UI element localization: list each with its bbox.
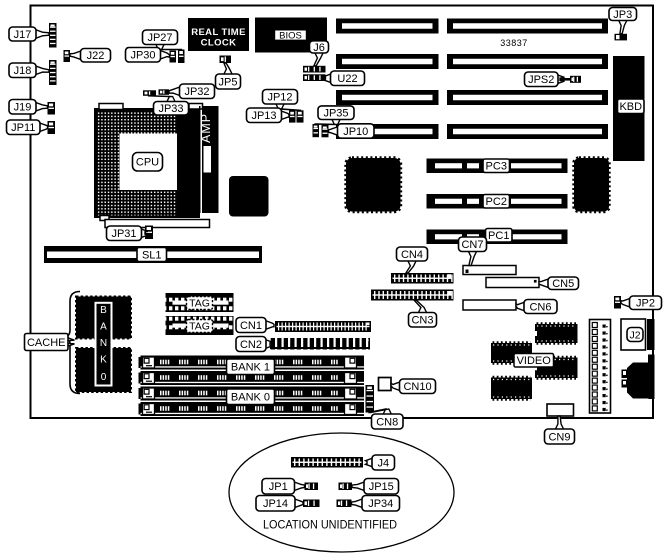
svg-text:TAG: TAG — [189, 298, 210, 310]
svg-text:JP10: JP10 — [343, 126, 368, 138]
svg-text:TAG: TAG — [189, 321, 210, 333]
svg-text:CACHE: CACHE — [27, 337, 66, 349]
svg-text:CN8: CN8 — [376, 416, 398, 428]
svg-text:BANK 0: BANK 0 — [231, 392, 270, 404]
svg-text:CLOCK: CLOCK — [201, 38, 237, 49]
svg-text:33837: 33837 — [500, 38, 528, 48]
svg-text:REAL TIME: REAL TIME — [191, 27, 246, 38]
svg-text:PC3: PC3 — [486, 161, 507, 173]
svg-text:JP3: JP3 — [613, 9, 632, 21]
svg-text:N: N — [100, 338, 107, 349]
svg-text:CN6: CN6 — [529, 301, 551, 313]
svg-text:JP15: JP15 — [369, 481, 394, 493]
svg-text:PC1: PC1 — [488, 230, 509, 242]
svg-text:CN9: CN9 — [548, 431, 570, 443]
svg-text:PC2: PC2 — [486, 196, 507, 208]
svg-text:JP1: JP1 — [269, 481, 288, 493]
svg-text:U22: U22 — [337, 73, 357, 85]
svg-text:BANK 1: BANK 1 — [231, 362, 270, 374]
svg-text:J19: J19 — [14, 102, 32, 114]
svg-text:CN10: CN10 — [403, 381, 431, 393]
svg-text:J22: J22 — [87, 50, 105, 62]
svg-text:AMP: AMP — [199, 113, 213, 143]
svg-text:K: K — [100, 355, 107, 366]
svg-text:JP2: JP2 — [636, 298, 655, 310]
svg-text:JP11: JP11 — [11, 122, 35, 134]
svg-text:VIDEO: VIDEO — [517, 355, 552, 367]
svg-text:JP5: JP5 — [219, 76, 238, 88]
svg-text:SL1: SL1 — [142, 249, 162, 261]
svg-text:KBD: KBD — [619, 101, 642, 113]
svg-text:A: A — [100, 322, 107, 333]
svg-text:BIOS: BIOS — [279, 31, 302, 42]
svg-text:JP32: JP32 — [184, 86, 209, 98]
svg-text:J4: J4 — [377, 457, 389, 469]
svg-text:CN3: CN3 — [411, 315, 433, 327]
svg-text:J2: J2 — [629, 329, 640, 341]
svg-text:CN7: CN7 — [461, 239, 483, 251]
svg-text:0: 0 — [101, 372, 107, 383]
svg-text:CN4: CN4 — [401, 249, 423, 261]
svg-text:JP12: JP12 — [267, 92, 292, 104]
svg-text:JP14: JP14 — [263, 498, 288, 510]
svg-text:CN1: CN1 — [240, 320, 262, 332]
svg-text:JP30: JP30 — [130, 50, 155, 62]
svg-text:JP34: JP34 — [368, 498, 393, 510]
svg-text:J6: J6 — [313, 42, 325, 54]
svg-text:LOCATION UNIDENTIFIED: LOCATION UNIDENTIFIED — [263, 520, 397, 532]
svg-text:B: B — [100, 305, 107, 316]
svg-text:CN2: CN2 — [240, 339, 262, 351]
svg-text:J17: J17 — [14, 29, 32, 41]
svg-text:JP13: JP13 — [251, 110, 276, 122]
svg-text:CN5: CN5 — [552, 278, 574, 290]
svg-text:CPU: CPU — [136, 157, 159, 169]
svg-text:JP35: JP35 — [323, 108, 348, 120]
svg-text:JP33: JP33 — [158, 103, 183, 115]
svg-text:JPS2: JPS2 — [528, 74, 554, 86]
svg-text:JP27: JP27 — [147, 32, 172, 44]
svg-text:J18: J18 — [14, 65, 32, 77]
svg-text:JP31: JP31 — [111, 228, 136, 240]
